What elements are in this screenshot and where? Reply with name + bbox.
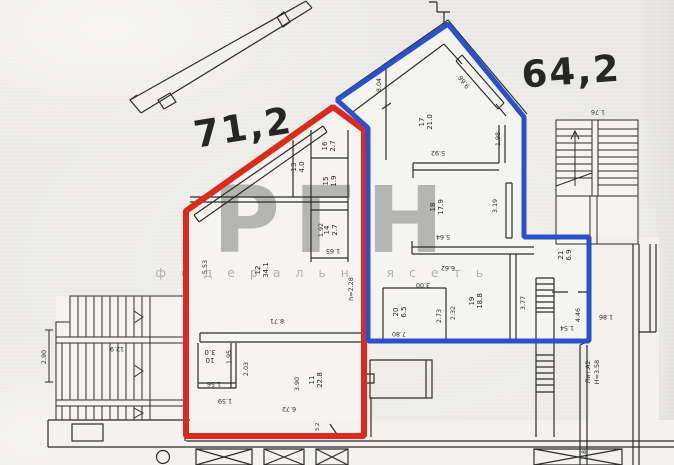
- floor-plan-scan: 134.0 162.7 151.9 142.7 1234.1 103.0 112…: [0, 0, 674, 465]
- dim-159: 1.59: [218, 397, 232, 405]
- svg-text:Н=3.58: Н=3.58: [593, 360, 601, 384]
- room-label-10: 103.0: [204, 348, 215, 364]
- dim-592: 5.92: [431, 149, 445, 157]
- svg-text:21: 21: [557, 251, 565, 260]
- dim-129: 12.9: [110, 345, 124, 353]
- svg-text:21.0: 21.0: [426, 114, 434, 130]
- room-label-16: 162.7: [321, 140, 337, 151]
- dim-32: 3.2: [315, 423, 321, 432]
- svg-text:6.5: 6.5: [400, 306, 408, 317]
- blue-area-label: 64,2: [520, 47, 622, 97]
- dim-377: 3.77: [519, 296, 527, 310]
- dim-176: 1.76: [591, 108, 605, 116]
- svg-text:20: 20: [392, 308, 400, 317]
- dim-300: 3.00: [416, 281, 430, 289]
- svg-text:Лит.А2: Лит.А2: [584, 360, 592, 383]
- svg-text:11: 11: [308, 376, 316, 385]
- dim-154: 1.54: [560, 324, 574, 332]
- dim-232: 2.32: [449, 306, 457, 320]
- floor-plan-svg: 134.0 162.7 151.9 142.7 1234.1 103.0 112…: [0, 0, 674, 465]
- dim-780: 7.80: [392, 330, 406, 338]
- svg-text:22.8: 22.8: [316, 372, 324, 388]
- vent-channels: [536, 278, 554, 437]
- svg-text:16: 16: [321, 141, 329, 150]
- lit-annotation: Лит.А2 Н=3.58: [584, 360, 601, 384]
- svg-text:3.0: 3.0: [204, 348, 215, 356]
- svg-text:18.8: 18.8: [476, 293, 484, 309]
- dim-186: 1.86: [599, 313, 613, 321]
- dim-672: 6.72: [282, 405, 296, 413]
- dim-319: 3.19: [491, 199, 499, 213]
- right-corridor-fill: [589, 237, 659, 465]
- dim-156: 1.56: [207, 380, 221, 388]
- dim-871: 8.71: [270, 317, 284, 325]
- svg-text:2.7: 2.7: [329, 140, 337, 151]
- dim-446: 4.46: [574, 308, 582, 322]
- dim-273: 2.73: [435, 309, 443, 323]
- svg-text:17: 17: [418, 118, 426, 127]
- dim-804: 8.04: [375, 78, 383, 92]
- dim-h228: h=2.28: [347, 277, 355, 301]
- watermark-tagline: ф е д е р а л ь н а я с е т ь: [155, 265, 488, 280]
- dim-18: 1.8: [580, 450, 588, 460]
- svg-text:6.9: 6.9: [565, 249, 573, 260]
- dim-195: 1.95: [225, 350, 233, 364]
- left-stair-fill: [56, 296, 185, 420]
- svg-text:19: 19: [468, 297, 476, 306]
- dim-390: 3.90: [293, 377, 301, 391]
- dim-203: 2.03: [242, 362, 250, 376]
- dim-198: 1.98: [494, 132, 502, 146]
- room-label-20: 206.5: [392, 306, 408, 317]
- dim-290: 2.90: [40, 350, 48, 364]
- watermark-logo: РГН: [212, 167, 457, 274]
- room-label-21: 216.9: [557, 249, 573, 260]
- building-strip-top-left: [130, 1, 312, 113]
- svg-text:10: 10: [206, 356, 215, 364]
